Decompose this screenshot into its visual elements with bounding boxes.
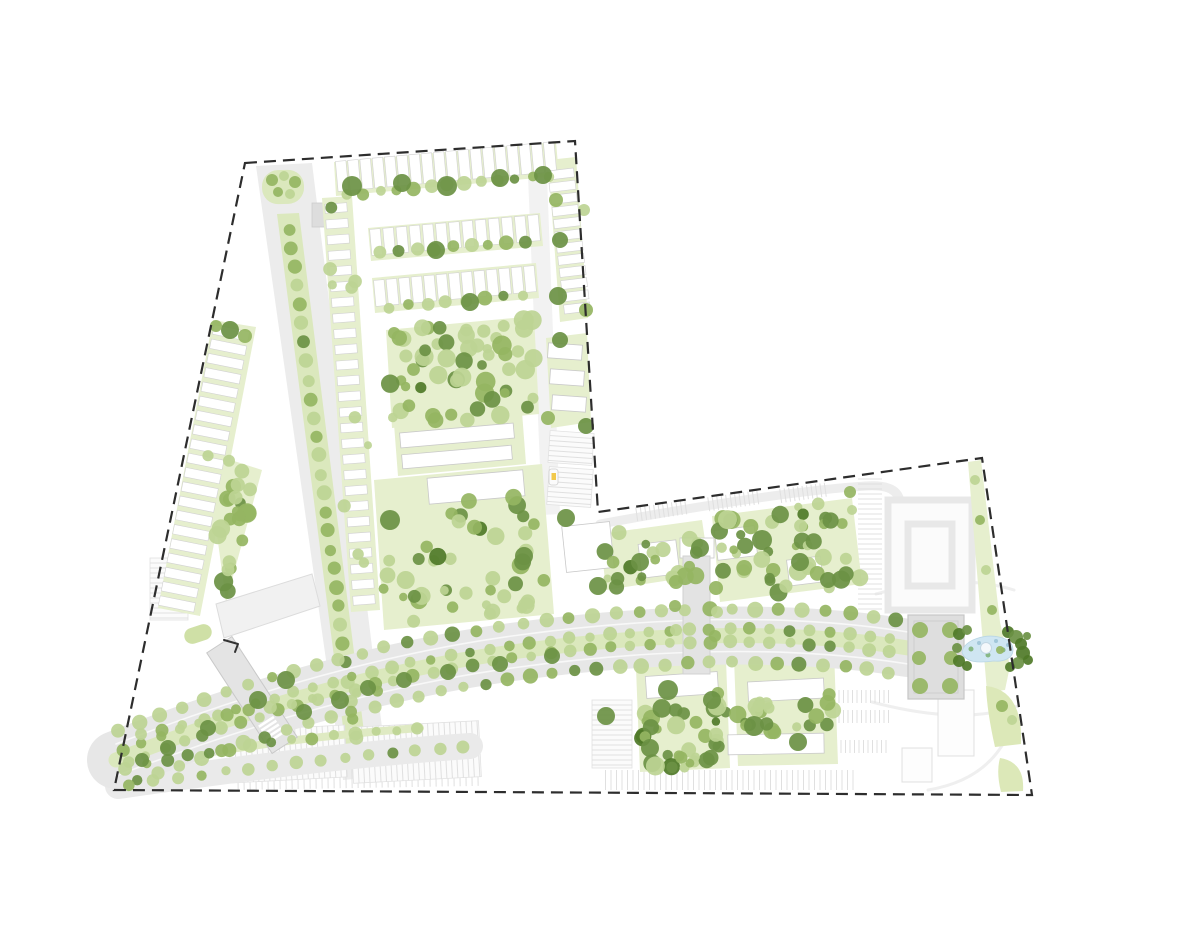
se-green-corner-2 xyxy=(998,758,1023,792)
se-green-corner-1 xyxy=(986,686,1021,747)
plan-figure xyxy=(0,0,1200,936)
green-pill xyxy=(182,622,214,646)
ne-parking-1 xyxy=(548,431,594,466)
se-buildings xyxy=(902,690,974,782)
parked-car xyxy=(549,469,558,485)
ring-parking xyxy=(888,500,972,610)
pond-fountain xyxy=(981,643,992,654)
bottom-parking-east xyxy=(606,770,854,790)
east-strip-parking xyxy=(858,479,882,609)
block-g-buildings xyxy=(548,343,587,412)
site-plan-canvas xyxy=(0,0,1200,936)
se-parking-stubs xyxy=(835,690,889,753)
